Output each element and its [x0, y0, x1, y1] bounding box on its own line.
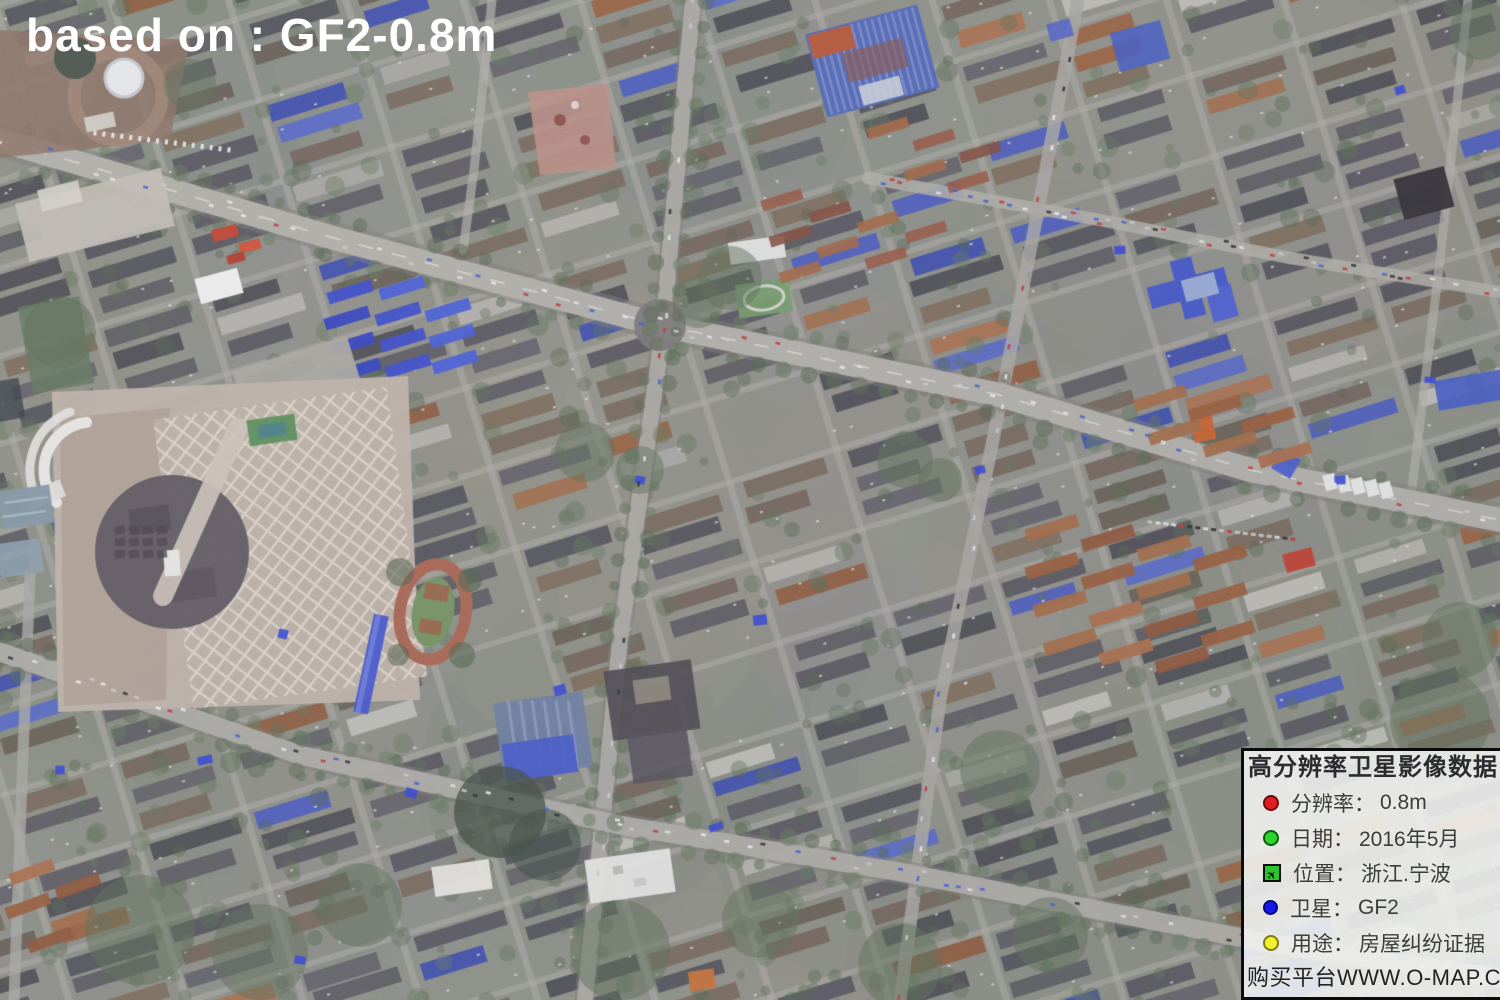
legend-row-satellite: 卫星： GF2	[1244, 890, 1500, 925]
legend-row-location: ✈ 位置： 浙江.宁波	[1244, 855, 1500, 890]
legend-label: 卫星：	[1290, 893, 1353, 923]
legend-value: 0.8m	[1380, 791, 1427, 815]
purchase-platform-text: 购买平台WWW.O-MAP.CN	[1244, 960, 1500, 997]
legend-row-resolution: 分辨率： 0.8m	[1244, 785, 1500, 820]
red-dot-icon	[1263, 795, 1279, 811]
blue-dot-icon	[1263, 900, 1278, 915]
legend-label: 分辨率：	[1291, 788, 1375, 818]
legend-row-date: 日期： 2016年5月	[1244, 820, 1500, 855]
green-dot-icon	[1263, 830, 1279, 846]
location-plane-icon: ✈	[1263, 864, 1281, 882]
metadata-panel: 高分辨率卫星影像数据 分辨率： 0.8m 日期： 2016年5月 ✈ 位置： 浙…	[1241, 748, 1500, 1000]
legend-value: GF2	[1358, 896, 1399, 920]
airplane-glyph: ✈	[1264, 867, 1280, 882]
yellow-dot-icon	[1263, 935, 1279, 951]
legend-label: 位置：	[1293, 858, 1356, 888]
legend-row-purpose: 用途： 房屋纠纷证据	[1244, 925, 1500, 960]
source-caption: based on : GF2-0.8m	[26, 8, 497, 62]
legend: 分辨率： 0.8m 日期： 2016年5月 ✈ 位置： 浙江.宁波 卫星： GF…	[1244, 785, 1500, 960]
legend-value: 浙江.宁波	[1361, 858, 1451, 888]
satellite-screenshot: based on : GF2-0.8m 高分辨率卫星影像数据 分辨率： 0.8m…	[0, 0, 1500, 1000]
legend-value: 2016年5月	[1359, 823, 1459, 853]
legend-label: 日期：	[1291, 823, 1354, 853]
legend-label: 用途：	[1291, 928, 1354, 958]
legend-value: 房屋纠纷证据	[1359, 928, 1485, 958]
panel-title: 高分辨率卫星影像数据	[1244, 751, 1500, 783]
